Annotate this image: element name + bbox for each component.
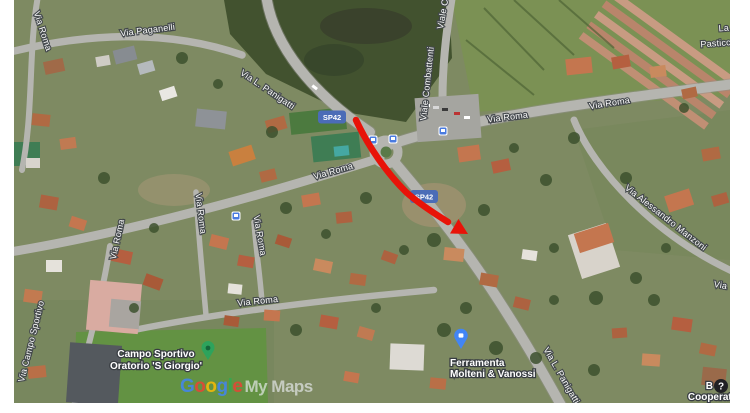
google-logo-letter: o xyxy=(205,376,216,397)
svg-text:?: ? xyxy=(718,381,724,392)
google-logo-letter: G xyxy=(180,376,194,397)
poi-campo-sportivo-line2: Oratorio 'S Giorgio' xyxy=(110,361,202,372)
google-logo-letter: o xyxy=(194,376,205,397)
poi-cooperativa-line2: Cooperativ xyxy=(688,392,730,403)
poi-campo-sportivo-line1: Campo Sportivo xyxy=(117,349,194,360)
screenshot-page: SP42 SP42 xyxy=(0,0,750,413)
street-label-la: La xyxy=(718,23,729,34)
my-maps-wordmark: My Maps xyxy=(244,377,312,396)
satellite-map[interactable]: SP42 SP42 xyxy=(14,0,730,403)
question-mark-icon[interactable]: ? xyxy=(714,379,728,393)
poi-cooperativa-line1: B xyxy=(706,381,713,392)
bus-stop-icon xyxy=(389,135,398,144)
shield-label: SP42 xyxy=(323,113,341,122)
bus-stop-icon xyxy=(439,127,448,136)
map-canvas: SP42 SP42 xyxy=(14,0,730,403)
google-my-maps-watermark: GoogleMy Maps xyxy=(180,376,313,398)
bus-stop-icon xyxy=(232,212,241,221)
poi-ferramenta-line2: Molteni & Vanossi xyxy=(450,369,536,380)
road-shield-sp42-1: SP42 xyxy=(318,111,346,124)
street-label-pasticceria: Pasticcer xyxy=(700,37,730,50)
poi-ferramenta-line1: Ferramenta xyxy=(450,358,505,369)
google-logo-letter: e xyxy=(232,376,242,397)
google-logo-letter: g xyxy=(217,376,228,397)
